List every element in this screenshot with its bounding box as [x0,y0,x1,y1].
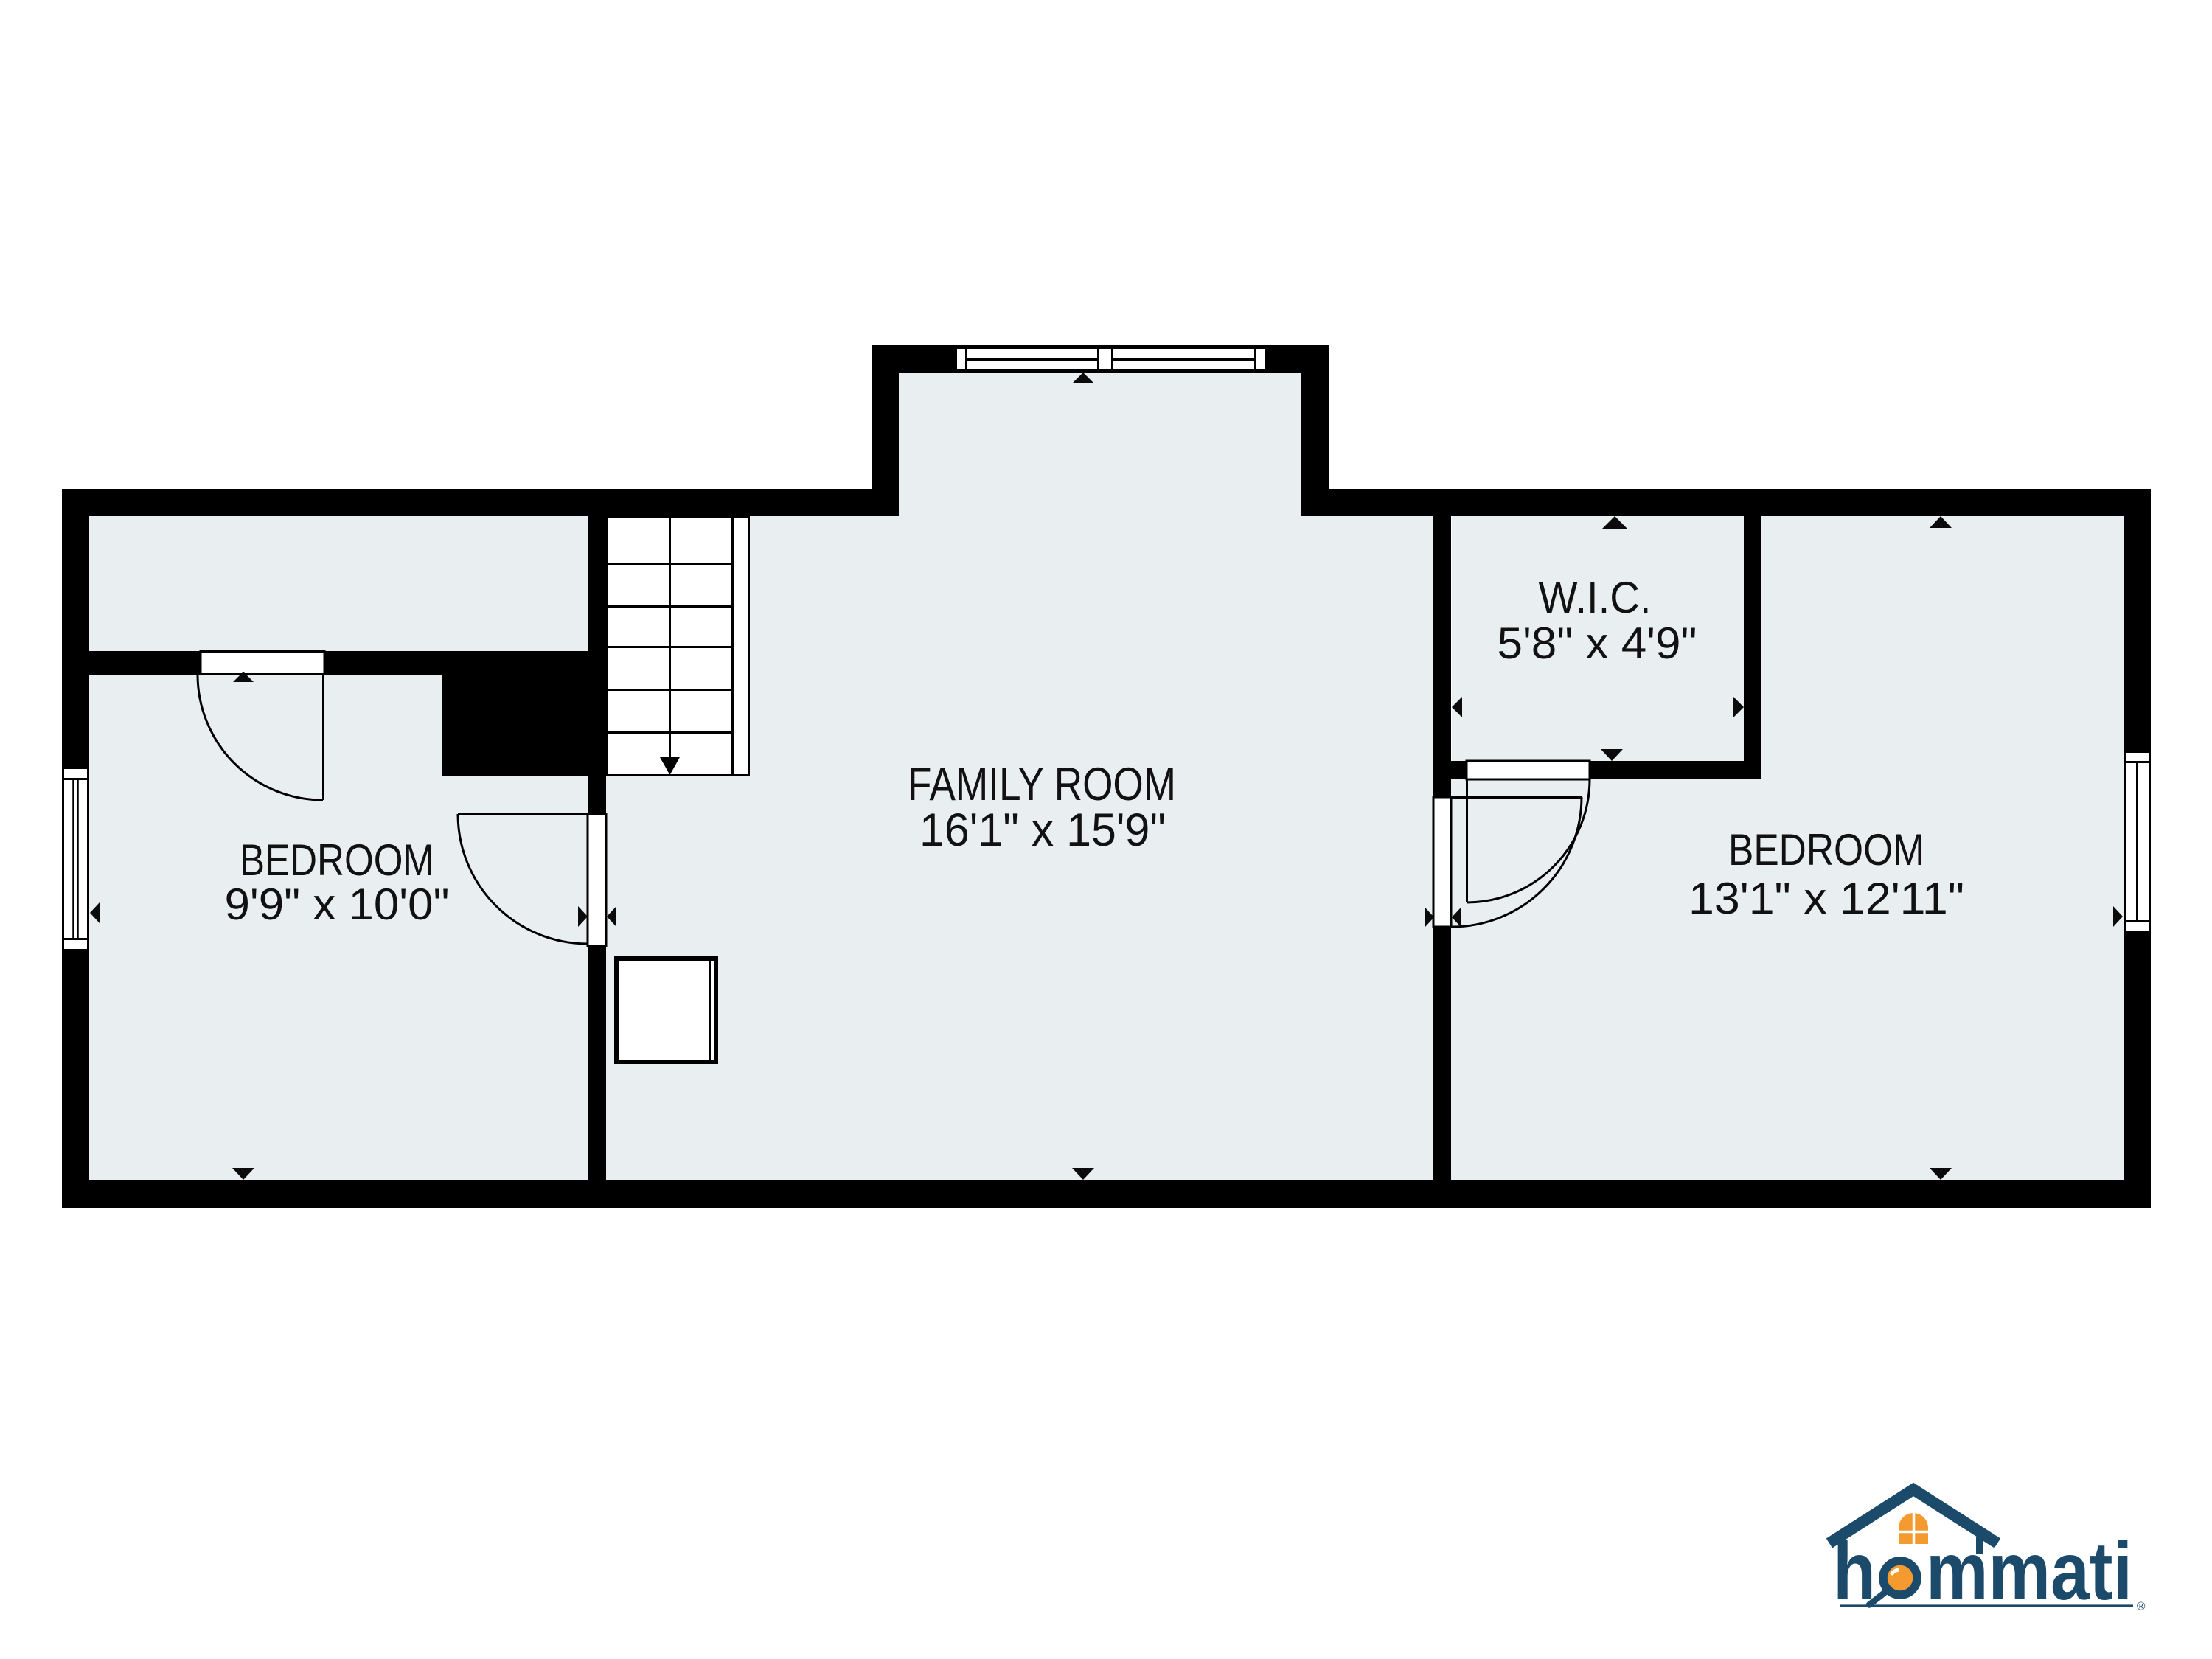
svg-text:13'1" x 12'11": 13'1" x 12'11" [1688,874,1964,923]
svg-text:®: ® [2137,1601,2146,1613]
svg-text:5'8" x 4'9": 5'8" x 4'9" [1498,619,1697,668]
svg-text:9'9" x 10'0": 9'9" x 10'0" [225,880,450,929]
svg-text:mmati: mmati [1926,1526,2132,1617]
svg-text:16'1" x 15'9": 16'1" x 15'9" [919,804,1166,856]
svg-text:FAMILY ROOM: FAMILY ROOM [908,759,1176,810]
svg-text:BEDROOM: BEDROOM [1728,825,1924,874]
svg-text:W.I.C.: W.I.C. [1539,573,1652,622]
svg-text:BEDROOM: BEDROOM [240,835,434,885]
